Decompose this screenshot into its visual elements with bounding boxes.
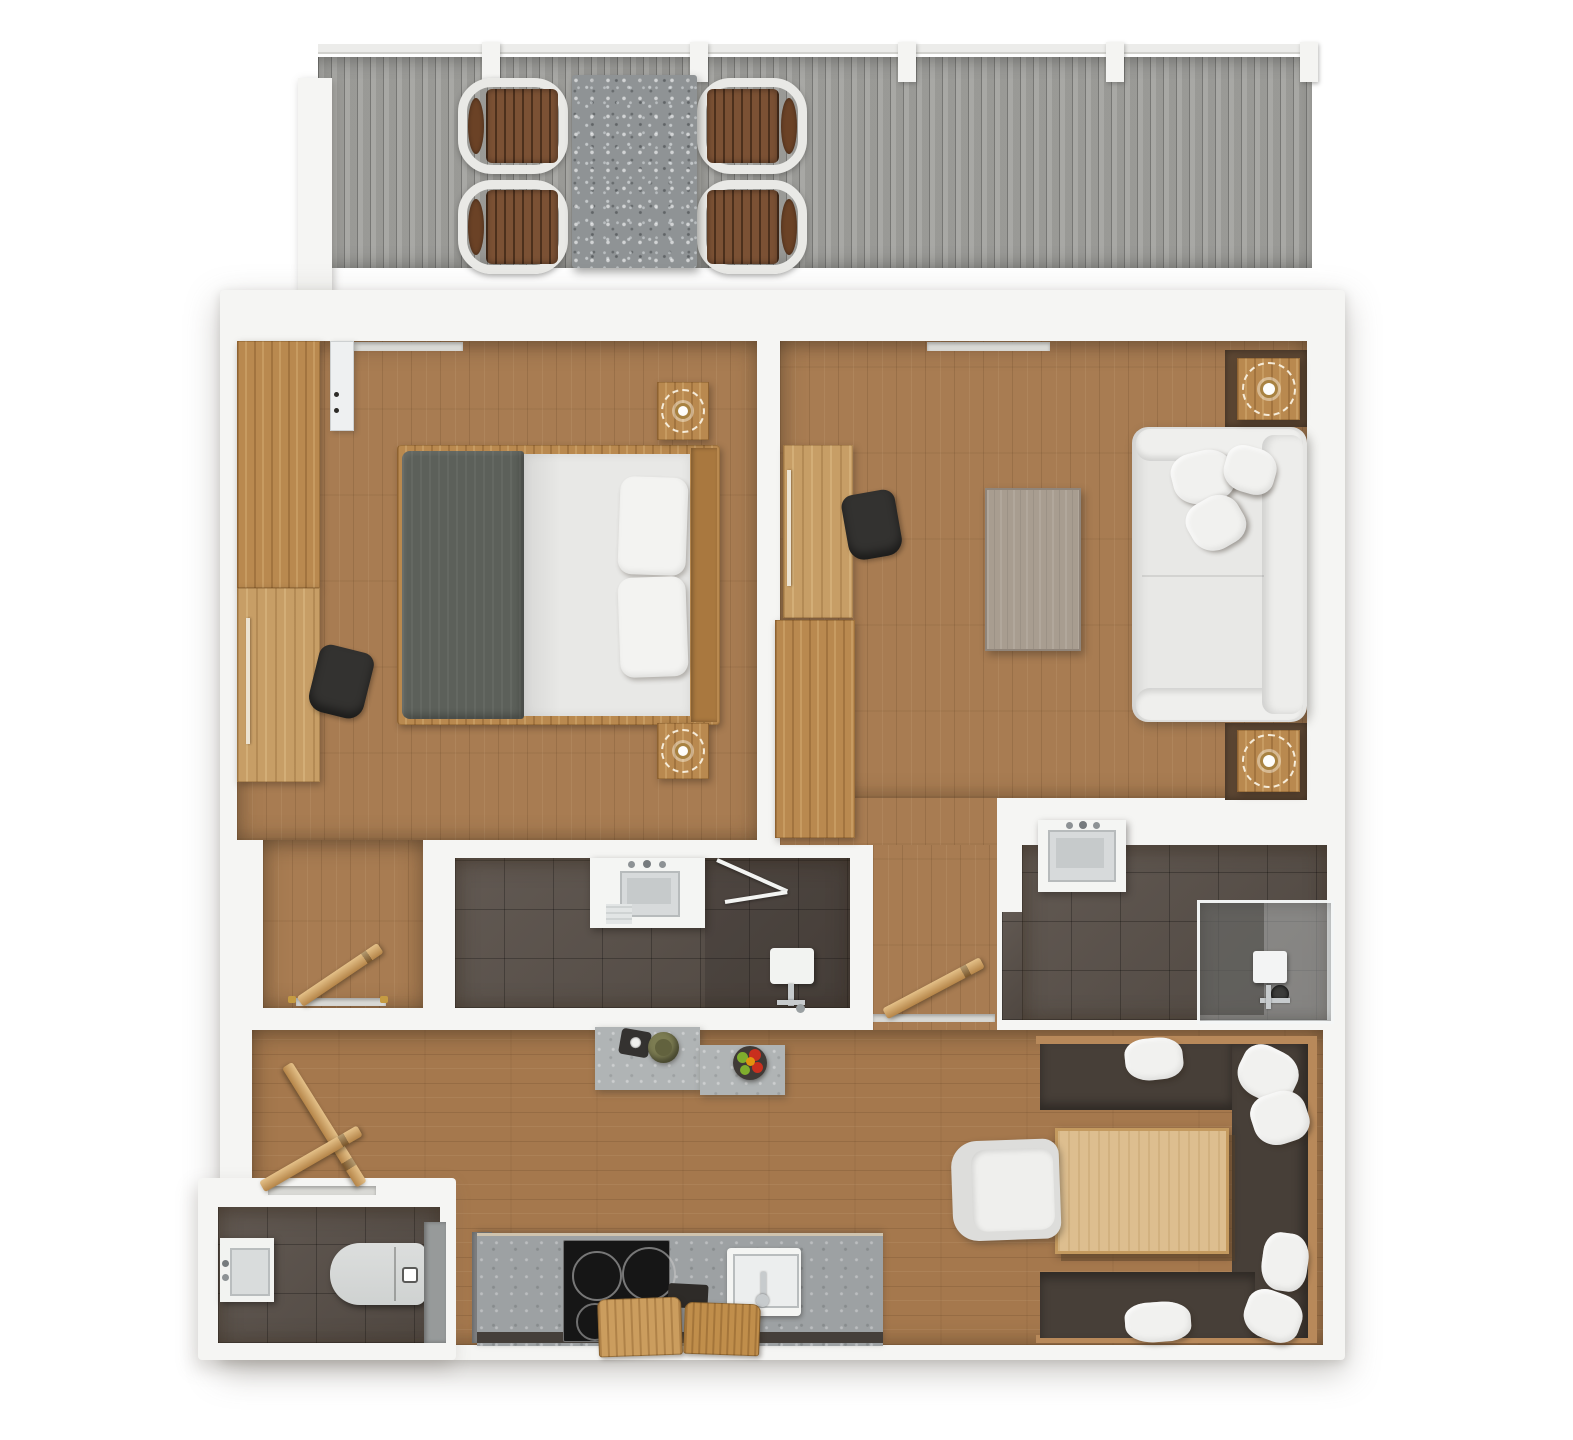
toilet-seam (394, 1247, 396, 1301)
wall-mirror (330, 341, 354, 431)
basin (1048, 830, 1116, 882)
outdoor-table (572, 75, 697, 268)
toilet-1-cistern (770, 948, 814, 984)
railing-post (898, 42, 916, 82)
balcony (0, 0, 1573, 300)
floor-plan-canvas (0, 0, 1573, 1440)
dresser-desk (237, 588, 320, 782)
outdoor-chair (697, 78, 807, 174)
bowl-inner (655, 1039, 672, 1056)
faucet-dot (1066, 822, 1073, 829)
lamp-bulb (678, 746, 688, 756)
bedroom-corridor-floor (263, 840, 423, 1008)
basin-inner (627, 878, 671, 904)
door-stop (288, 996, 296, 1003)
faucet-dot (659, 861, 666, 868)
railing-post (1300, 42, 1318, 82)
chair-seat (707, 190, 779, 264)
dining-table (1055, 1128, 1229, 1254)
faucet-dot (1079, 821, 1087, 829)
sideboard (775, 620, 855, 838)
basin (230, 1248, 270, 1296)
cutting-board (683, 1302, 761, 1357)
chair-seat (486, 190, 558, 264)
table-lamp (1242, 734, 1296, 788)
desk-living (783, 445, 853, 618)
shower-pipe (1266, 985, 1271, 1009)
chair-seat (971, 1147, 1056, 1232)
dining-chair (950, 1138, 1061, 1242)
bench-cushion (1124, 1300, 1193, 1345)
chair-backrest (781, 199, 797, 255)
sofa-seam (1142, 575, 1264, 577)
nightstand (657, 723, 709, 779)
fruit (746, 1057, 755, 1066)
grinder (629, 1036, 642, 1049)
chair-seat (486, 89, 558, 163)
door-stop (380, 996, 388, 1003)
lamp-bulb (1263, 755, 1275, 767)
sofa (1132, 427, 1307, 722)
faucet-dot (628, 861, 635, 868)
table-lamp (661, 389, 705, 433)
shower-enclosure (1197, 900, 1334, 1024)
bed-duvet (402, 451, 524, 719)
chair-seat (707, 89, 779, 163)
bed-pillow (617, 476, 688, 576)
outdoor-chair (458, 180, 568, 274)
shower-seat (1253, 951, 1287, 983)
wc-sink (220, 1238, 274, 1302)
basin-inner (1056, 838, 1104, 868)
faucet-dot (222, 1274, 229, 1281)
bench-rim (1308, 1036, 1317, 1343)
bed-headboard (691, 448, 717, 722)
fruit-bowl (733, 1046, 767, 1080)
toilet-1-valve (796, 1004, 805, 1013)
side-table (1237, 358, 1300, 420)
chair-backrest (468, 199, 484, 255)
washbasin-1 (590, 858, 705, 928)
faucet-dot (643, 860, 651, 868)
kitchen-faucet-head (756, 1294, 769, 1307)
shower-zone-1 (705, 858, 850, 1008)
bed (397, 445, 720, 725)
coffee-table (985, 488, 1081, 651)
bathroom-2-doorway-floor (1002, 912, 1022, 1020)
serving-board (618, 1028, 652, 1059)
wc-toilet (330, 1243, 426, 1305)
outdoor-chair (697, 180, 807, 274)
washbasin-2 (1038, 820, 1126, 892)
desk-chair-living (840, 488, 905, 562)
mirror-hook (334, 408, 339, 413)
door-threshold-wc (268, 1186, 376, 1195)
lamp-bulb (678, 406, 688, 416)
balcony-railing (318, 44, 1312, 54)
table-lamp (661, 729, 705, 773)
shower-pipe (1260, 998, 1290, 1003)
mirror-hook (334, 392, 339, 397)
railing-post (1106, 42, 1124, 82)
faucet-dot (222, 1260, 229, 1267)
balcony-door-track-living (927, 342, 1050, 351)
wc-cabinet (424, 1222, 446, 1343)
nightstand (657, 382, 709, 440)
side-table (1237, 730, 1300, 792)
chair-backrest (781, 98, 797, 154)
towel (606, 904, 632, 924)
cutting-board (597, 1297, 683, 1358)
table-lamp (1242, 362, 1296, 416)
dresser-handle (246, 618, 250, 744)
lamp-bulb (1263, 383, 1275, 395)
bowl (648, 1032, 679, 1063)
flush-button (402, 1267, 418, 1283)
outdoor-chair (458, 78, 568, 174)
burner (572, 1251, 622, 1301)
wardrobe (237, 341, 320, 588)
fruit (740, 1065, 750, 1075)
balcony-side-wall (298, 78, 332, 292)
railing-post (482, 42, 500, 82)
desk-handle (787, 470, 791, 586)
faucet-dot (1093, 822, 1100, 829)
chair-backrest (468, 98, 484, 154)
bed-pillow (617, 576, 688, 678)
